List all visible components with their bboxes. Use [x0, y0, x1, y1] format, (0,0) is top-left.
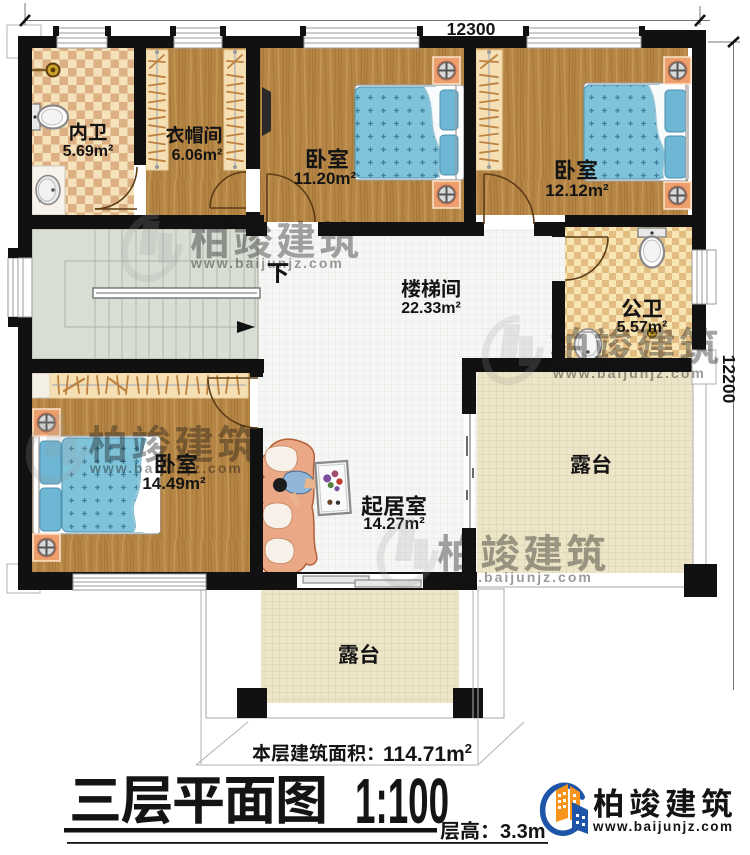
svg-text:露台: 露台 [570, 453, 612, 477]
svg-text:www.baijunjz.com: www.baijunjz.com [592, 819, 734, 834]
svg-text:衣帽间: 衣帽间 [165, 125, 222, 147]
svg-text:内卫: 内卫 [68, 122, 107, 144]
svg-text:11.20m²: 11.20m² [294, 169, 357, 188]
svg-text:三层平面图: 三层平面图 [69, 759, 327, 835]
svg-text:22.33m²: 22.33m² [401, 300, 461, 317]
svg-text:114.71m2: 114.71m2 [383, 741, 472, 766]
svg-text:卧室: 卧室 [554, 158, 598, 183]
svg-text:www.baijunjz.com: www.baijunjz.com [439, 569, 593, 585]
svg-text:6.06m²: 6.06m² [172, 147, 223, 164]
svg-text:14.49m²: 14.49m² [142, 474, 206, 493]
svg-text:www.baijunjz.com: www.baijunjz.com [552, 365, 706, 381]
svg-text:露台: 露台 [338, 643, 380, 667]
svg-text:12200: 12200 [719, 355, 739, 404]
svg-text:www.baijunjz.com: www.baijunjz.com [190, 255, 344, 271]
svg-text:1:100: 1:100 [355, 767, 449, 838]
svg-text:12.12m²: 12.12m² [545, 181, 609, 200]
svg-text:5.69m²: 5.69m² [63, 143, 114, 160]
svg-text:楼梯间: 楼梯间 [401, 279, 461, 301]
svg-text:12300: 12300 [447, 19, 496, 39]
svg-text:www.baijunjz.com: www.baijunjz.com [89, 460, 243, 476]
